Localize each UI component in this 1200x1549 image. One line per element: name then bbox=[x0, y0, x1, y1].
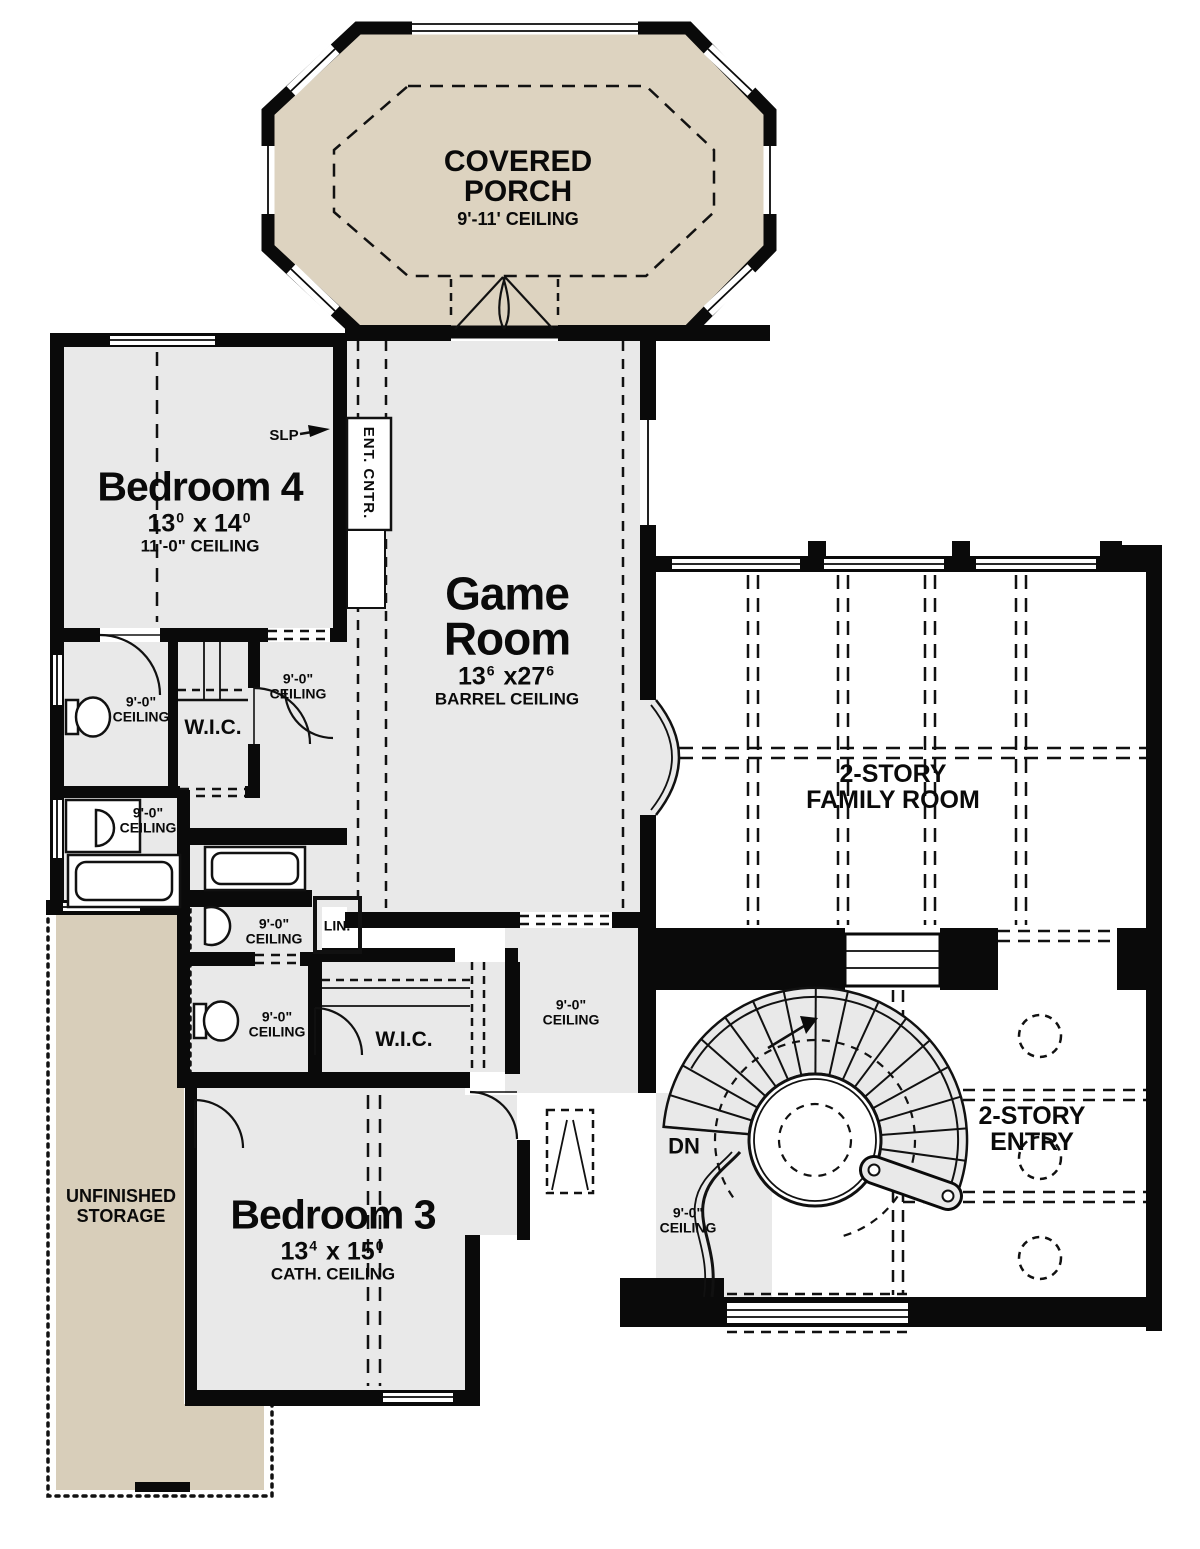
wic2-label: W.I.C. bbox=[375, 1029, 432, 1051]
ceiling-note: 11'-0" CEILING bbox=[97, 537, 302, 555]
room-name: COVERED bbox=[444, 147, 592, 177]
room-name: Room bbox=[435, 617, 579, 662]
ceiling-9-label: 9'-0"CEILING bbox=[120, 806, 177, 837]
family-room-label: 2-STORY FAMILY ROOM bbox=[806, 761, 980, 813]
ceiling-note: 9'-11' CEILING bbox=[444, 210, 592, 229]
covered-porch-label: COVERED PORCH 9'-11' CEILING bbox=[444, 147, 592, 229]
floor-plan-drawing bbox=[0, 0, 1200, 1549]
entertainment-center-label: ENT. CNTR. bbox=[360, 427, 376, 520]
floor-plan: COVERED PORCH 9'-11' CEILING Bedroom 4 1… bbox=[0, 0, 1200, 1549]
bedroom3-label: Bedroom 3 134 x 150 CATH. CEILING bbox=[230, 1193, 435, 1282]
bedroom4-label: Bedroom 4 130 x 140 11'-0" CEILING bbox=[97, 465, 302, 554]
room-name: Bedroom 3 bbox=[230, 1193, 435, 1236]
room-name: Bedroom 4 bbox=[97, 465, 302, 508]
ceiling-9-label: 9'-0"CEILING bbox=[113, 695, 170, 726]
slope-label: SLP bbox=[269, 428, 298, 444]
stair-down-label: DN bbox=[668, 1136, 700, 1159]
unfinished-storage-label: UNFINISHEDSTORAGE bbox=[66, 1186, 176, 1226]
wic1-label: W.I.C. bbox=[184, 717, 241, 739]
ceiling-note: BARREL CEILING bbox=[435, 691, 579, 709]
entry-label: 2-STORY ENTRY bbox=[979, 1103, 1086, 1155]
game-room-label: Game Room 136 x276 BARREL CEILING bbox=[435, 572, 579, 709]
room-dimensions: 136 x276 bbox=[435, 664, 579, 690]
room-dimensions: 134 x 150 bbox=[230, 1238, 435, 1264]
linen-label: LIN. bbox=[324, 919, 350, 934]
ceiling-9-label: 9'-0"CEILING bbox=[270, 672, 327, 703]
room-name: PORCH bbox=[444, 177, 592, 207]
ceiling-9-label: 9'-0"CEILING bbox=[543, 998, 600, 1029]
ceiling-9-label: 9'-0"CEILING bbox=[249, 1010, 306, 1041]
room-dimensions: 130 x 140 bbox=[97, 510, 302, 536]
ceiling-9-label: 9'-0"CEILING bbox=[246, 917, 303, 948]
room-name: Game bbox=[435, 572, 579, 617]
ceiling-note: CATH. CEILING bbox=[230, 1265, 435, 1283]
ceiling-9-label: 9'-0"CEILING bbox=[660, 1206, 717, 1237]
